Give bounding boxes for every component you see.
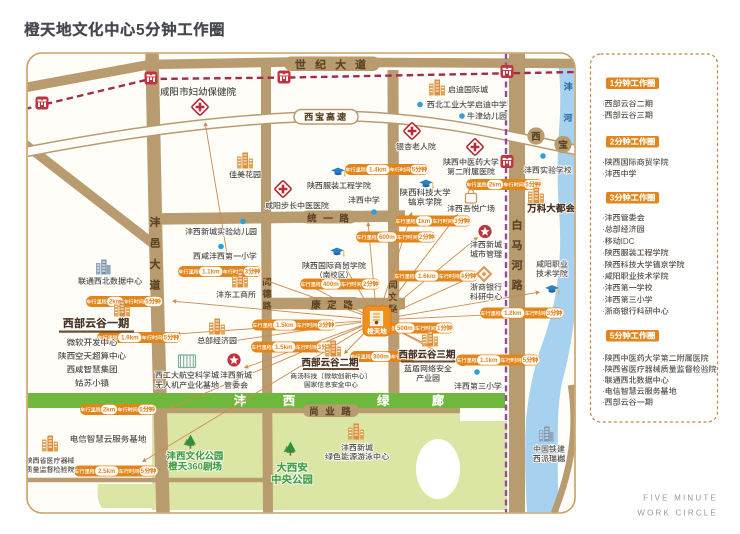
svg-text:西工大航空科学城: 西工大航空科学城	[155, 370, 219, 380]
svg-text:西: 西	[283, 394, 296, 408]
svg-text:车行时间: 车行时间	[397, 234, 418, 241]
svg-text:德: 德	[261, 288, 271, 299]
svg-text:联通西北数据中心: 联通西北数据中心	[78, 276, 142, 286]
svg-text:西北工业大学启迪中学: 西北工业大学启迪中学	[427, 101, 507, 110]
svg-text:启迪国际城: 启迪国际城	[448, 86, 488, 95]
svg-text:（南校区）: （南校区）	[315, 271, 353, 280]
svg-text:无人机产业化基地: 无人机产业化基地	[155, 380, 219, 390]
svg-text:陕西中医药大学: 陕西中医药大学	[443, 158, 499, 167]
svg-text:1.5km: 1.5km	[275, 344, 293, 351]
svg-text:车行里程: 车行里程	[251, 344, 273, 351]
svg-text:·陕西中医药大学第二附属医院: ·陕西中医药大学第二附属医院	[602, 353, 709, 363]
svg-text:4分钟: 4分钟	[461, 272, 478, 280]
svg-text:沣西吾悦广场: 沣西吾悦广场	[447, 204, 495, 214]
svg-text:·沣西第一学校: ·沣西第一学校	[602, 283, 653, 293]
svg-text:统 一 路: 统 一 路	[307, 213, 351, 225]
svg-text:2.5km: 2.5km	[98, 468, 116, 475]
svg-text:1.6km: 1.6km	[418, 273, 436, 280]
svg-text:陕西服装工程学院: 陕西服装工程学院	[307, 182, 371, 191]
svg-text:5分钟: 5分钟	[141, 467, 158, 475]
svg-text:车行时间: 车行时间	[297, 322, 318, 329]
svg-text:2分钟工作圈: 2分钟工作圈	[610, 137, 656, 147]
svg-text:车行里程: 车行里程	[178, 269, 200, 276]
svg-text:镐京学院: 镐京学院	[407, 197, 443, 207]
svg-text:5分钟工作圈: 5分钟工作圈	[610, 331, 656, 341]
svg-text:·沣西管委会: ·沣西管委会	[602, 214, 646, 223]
svg-text:1分钟: 1分钟	[437, 324, 454, 332]
svg-text:管委会: 管委会	[224, 381, 249, 390]
svg-text:车行时间: 车行时间	[525, 310, 546, 317]
svg-text:车行时间: 车行时间	[439, 273, 460, 280]
svg-text:车行时间: 车行时间	[390, 167, 411, 174]
svg-text:500m: 500m	[397, 325, 413, 332]
svg-text:车行里程: 车行里程	[80, 407, 102, 414]
svg-text:车行里程: 车行里程	[456, 357, 478, 364]
svg-text:5分钟: 5分钟	[412, 166, 429, 174]
svg-text:车行里程: 车行里程	[345, 167, 367, 174]
svg-text:车行里程: 车行里程	[466, 182, 488, 189]
svg-text:电信智慧云服务基地: 电信智慧云服务基地	[70, 434, 147, 444]
svg-text:WORK CIRCLE: WORK CIRCLE	[637, 509, 718, 518]
svg-text:车行里程: 车行里程	[395, 218, 417, 225]
svg-text:邑: 邑	[150, 237, 161, 250]
svg-text:5分钟: 5分钟	[139, 406, 156, 414]
svg-text:车行时间: 车行时间	[123, 299, 144, 306]
svg-text:1.9km: 1.9km	[121, 335, 139, 342]
svg-text:车行时间: 车行时间	[296, 344, 317, 351]
svg-text:车行里程: 车行里程	[252, 322, 274, 329]
svg-text:陕西空天超算中心: 陕西空天超算中心	[58, 351, 126, 361]
svg-text:浙商银行: 浙商银行	[470, 283, 502, 292]
svg-text:路: 路	[512, 279, 524, 292]
svg-text:陕西科技大学: 陕西科技大学	[399, 188, 451, 198]
svg-text:质量监督检验院: 质量监督检验院	[26, 465, 75, 474]
svg-text:尚 业 路: 尚 业 路	[309, 406, 353, 418]
svg-text:2分钟: 2分钟	[419, 233, 436, 241]
svg-text:车行时间: 车行时间	[119, 468, 140, 475]
svg-text:3分钟: 3分钟	[547, 309, 564, 317]
svg-text:牛津幼儿园: 牛津幼儿园	[467, 112, 507, 121]
svg-text:车行时间: 车行时间	[501, 357, 522, 364]
svg-text:车行里程: 车行里程	[300, 281, 322, 288]
svg-text:中央公园: 中央公园	[271, 473, 313, 486]
svg-text:1.1km: 1.1km	[480, 357, 498, 364]
svg-text:车行里程: 车行里程	[394, 273, 416, 280]
svg-text:车行时间: 车行时间	[432, 218, 453, 225]
svg-text:·陕西省医疗器械质量监督检验院: ·陕西省医疗器械质量监督检验院	[602, 364, 717, 374]
svg-text:5分钟: 5分钟	[145, 298, 162, 306]
svg-text:3分钟: 3分钟	[319, 321, 336, 329]
svg-text:·沣西第三小学: ·沣西第三小学	[602, 294, 653, 304]
svg-text:·联通西北数据中心: ·联通西北数据中心	[602, 375, 669, 385]
svg-text:1.1km: 1.1km	[202, 269, 220, 276]
svg-text:车行里程: 车行里程	[480, 310, 502, 317]
svg-text:道: 道	[150, 279, 162, 292]
svg-text:西宝高速: 西宝高速	[304, 111, 348, 122]
svg-text:·电信智慧云服务基地: ·电信智慧云服务基地	[602, 387, 677, 396]
svg-text:技术学院: 技术学院	[536, 270, 568, 279]
svg-text:科研中心: 科研中心	[469, 292, 502, 302]
svg-text:2分钟: 2分钟	[363, 280, 380, 288]
svg-text:3分钟工作圈: 3分钟工作圈	[610, 193, 656, 203]
svg-text:西部云谷二期: 西部云谷二期	[301, 357, 359, 369]
svg-text:车行里程: 车行里程	[356, 234, 378, 241]
svg-text:5分钟: 5分钟	[523, 356, 540, 364]
svg-text:·西部云谷一期: ·西部云谷一期	[602, 398, 653, 407]
svg-text:车行时间: 车行时间	[341, 281, 362, 288]
svg-text:·陕西科技大学镐京学院: ·陕西科技大学镐京学院	[602, 259, 685, 269]
svg-text:西咸沣西第一小学: 西咸沣西第一小学	[193, 251, 257, 261]
svg-text:姑苏小镇: 姑苏小镇	[75, 378, 110, 388]
svg-text:西派瑞樾: 西派瑞樾	[533, 454, 565, 464]
svg-text:沣西文化公园: 沣西文化公园	[166, 450, 223, 462]
svg-text:河: 河	[511, 259, 523, 272]
svg-text:沣: 沣	[562, 81, 572, 92]
svg-text:宝: 宝	[558, 139, 568, 151]
svg-text:西: 西	[531, 131, 541, 143]
svg-text:西部云谷一期: 西部云谷一期	[63, 317, 129, 330]
svg-text:银杏老人院: 银杏老人院	[395, 143, 436, 152]
svg-text:·浙商银行科研中心: ·浙商银行科研中心	[602, 306, 669, 316]
svg-text:2km: 2km	[489, 182, 502, 189]
svg-text:橙天地: 橙天地	[366, 328, 387, 336]
svg-text:车行时间: 车行时间	[503, 182, 524, 189]
svg-text:5分钟: 5分钟	[164, 334, 181, 342]
svg-text:400m: 400m	[323, 281, 339, 288]
svg-text:1km: 1km	[418, 218, 431, 225]
svg-text:600m: 600m	[379, 234, 395, 241]
svg-text:·咸阳职业技术学院: ·咸阳职业技术学院	[602, 272, 669, 281]
svg-text:陕西国际商贸学院: 陕西国际商贸学院	[302, 262, 366, 271]
svg-text:沣西新城实验幼儿园: 沣西新城实验幼儿园	[185, 228, 257, 237]
svg-text:橙天360剧场: 橙天360剧场	[168, 461, 222, 473]
svg-text:绿色能源游泳中心: 绿色能源游泳中心	[325, 452, 389, 462]
svg-text:产业园: 产业园	[416, 374, 440, 383]
svg-text:FIVE MINUTE: FIVE MINUTE	[643, 494, 718, 503]
svg-text:300m: 300m	[373, 354, 389, 361]
svg-text:国家信息安全中心: 国家信息安全中心	[304, 380, 359, 389]
svg-text:万科大都会: 万科大都会	[526, 203, 575, 215]
svg-text:绿: 绿	[377, 394, 390, 408]
svg-text:佳美花园: 佳美花园	[229, 171, 261, 180]
svg-text:1.5km: 1.5km	[276, 322, 294, 329]
svg-text:车行里程: 车行里程	[74, 468, 96, 475]
svg-text:中国铁建: 中国铁建	[533, 444, 565, 454]
svg-text:西咸智慧集团: 西咸智慧集团	[66, 365, 118, 375]
svg-text:车行时间: 车行时间	[142, 335, 163, 342]
svg-text:1分钟工作圈: 1分钟工作圈	[610, 78, 656, 88]
svg-text:大: 大	[150, 258, 162, 271]
svg-text:河: 河	[562, 113, 572, 123]
svg-text:廊: 廊	[432, 393, 445, 408]
svg-text:3分钟: 3分钟	[454, 217, 471, 225]
svg-text:第二附属医院: 第二附属医院	[447, 167, 495, 177]
svg-text:3分钟: 3分钟	[245, 268, 262, 276]
svg-text:大西安: 大西安	[276, 461, 308, 474]
svg-text:·移动IDC: ·移动IDC	[602, 237, 635, 246]
svg-text:·西部云谷三期: ·西部云谷三期	[602, 111, 653, 120]
svg-text:橙天地文化中心5分钟工作圈: 橙天地文化中心5分钟工作圈	[24, 21, 225, 39]
svg-text:·总部经济园: ·总部经济园	[602, 225, 645, 234]
svg-text:白: 白	[512, 219, 523, 232]
svg-text:沣西第三小学: 沣西第三小学	[454, 381, 502, 391]
svg-text:咸阳步长中医医院: 咸阳步长中医医院	[265, 202, 329, 211]
svg-text:·陕西国际商贸学院: ·陕西国际商贸学院	[602, 158, 669, 167]
svg-text:车行里程: 车行里程	[86, 299, 108, 306]
svg-text:沣: 沣	[150, 216, 162, 229]
svg-text:1.4km: 1.4km	[369, 167, 387, 174]
svg-text:·西部云谷二期: ·西部云谷二期	[602, 100, 653, 109]
svg-text:咸阳职业: 咸阳职业	[536, 260, 568, 269]
svg-text:马: 马	[512, 239, 523, 252]
svg-text:世 纪 大 道: 世 纪 大 道	[295, 59, 369, 72]
svg-text:沣西中学: 沣西中学	[348, 196, 380, 205]
svg-text:微软开发中心: 微软开发中心	[66, 338, 117, 348]
svg-text:1.2km: 1.2km	[504, 310, 522, 317]
svg-text:车行时间: 车行时间	[117, 407, 138, 414]
svg-text:·陕西服装工程学院: ·陕西服装工程学院	[602, 249, 669, 258]
svg-text:总部经济园: 总部经济园	[197, 337, 237, 346]
svg-text:商汤科技（微软创新中心）: 商汤科技（微软创新中心）	[290, 372, 372, 381]
svg-text:沣西新城: 沣西新城	[470, 241, 502, 250]
svg-text:蓝盾网络安全: 蓝盾网络安全	[404, 365, 453, 374]
svg-text:沣东工商所: 沣东工商所	[216, 291, 256, 300]
svg-text:咸阳市妇幼保健院: 咸阳市妇幼保健院	[160, 86, 237, 98]
svg-text:西部云谷三期: 西部云谷三期	[398, 349, 456, 361]
svg-text:沣西实验学校: 沣西实验学校	[524, 165, 572, 175]
svg-text:沣西新城: 沣西新城	[220, 371, 252, 380]
svg-text:·沣西中学: ·沣西中学	[602, 169, 637, 178]
svg-text:2km: 2km	[103, 407, 116, 414]
svg-text:城市管理: 城市管理	[470, 250, 502, 259]
svg-text:沣西新城: 沣西新城	[341, 444, 373, 453]
svg-text:陕西省医疗器械: 陕西省医疗器械	[26, 456, 76, 465]
